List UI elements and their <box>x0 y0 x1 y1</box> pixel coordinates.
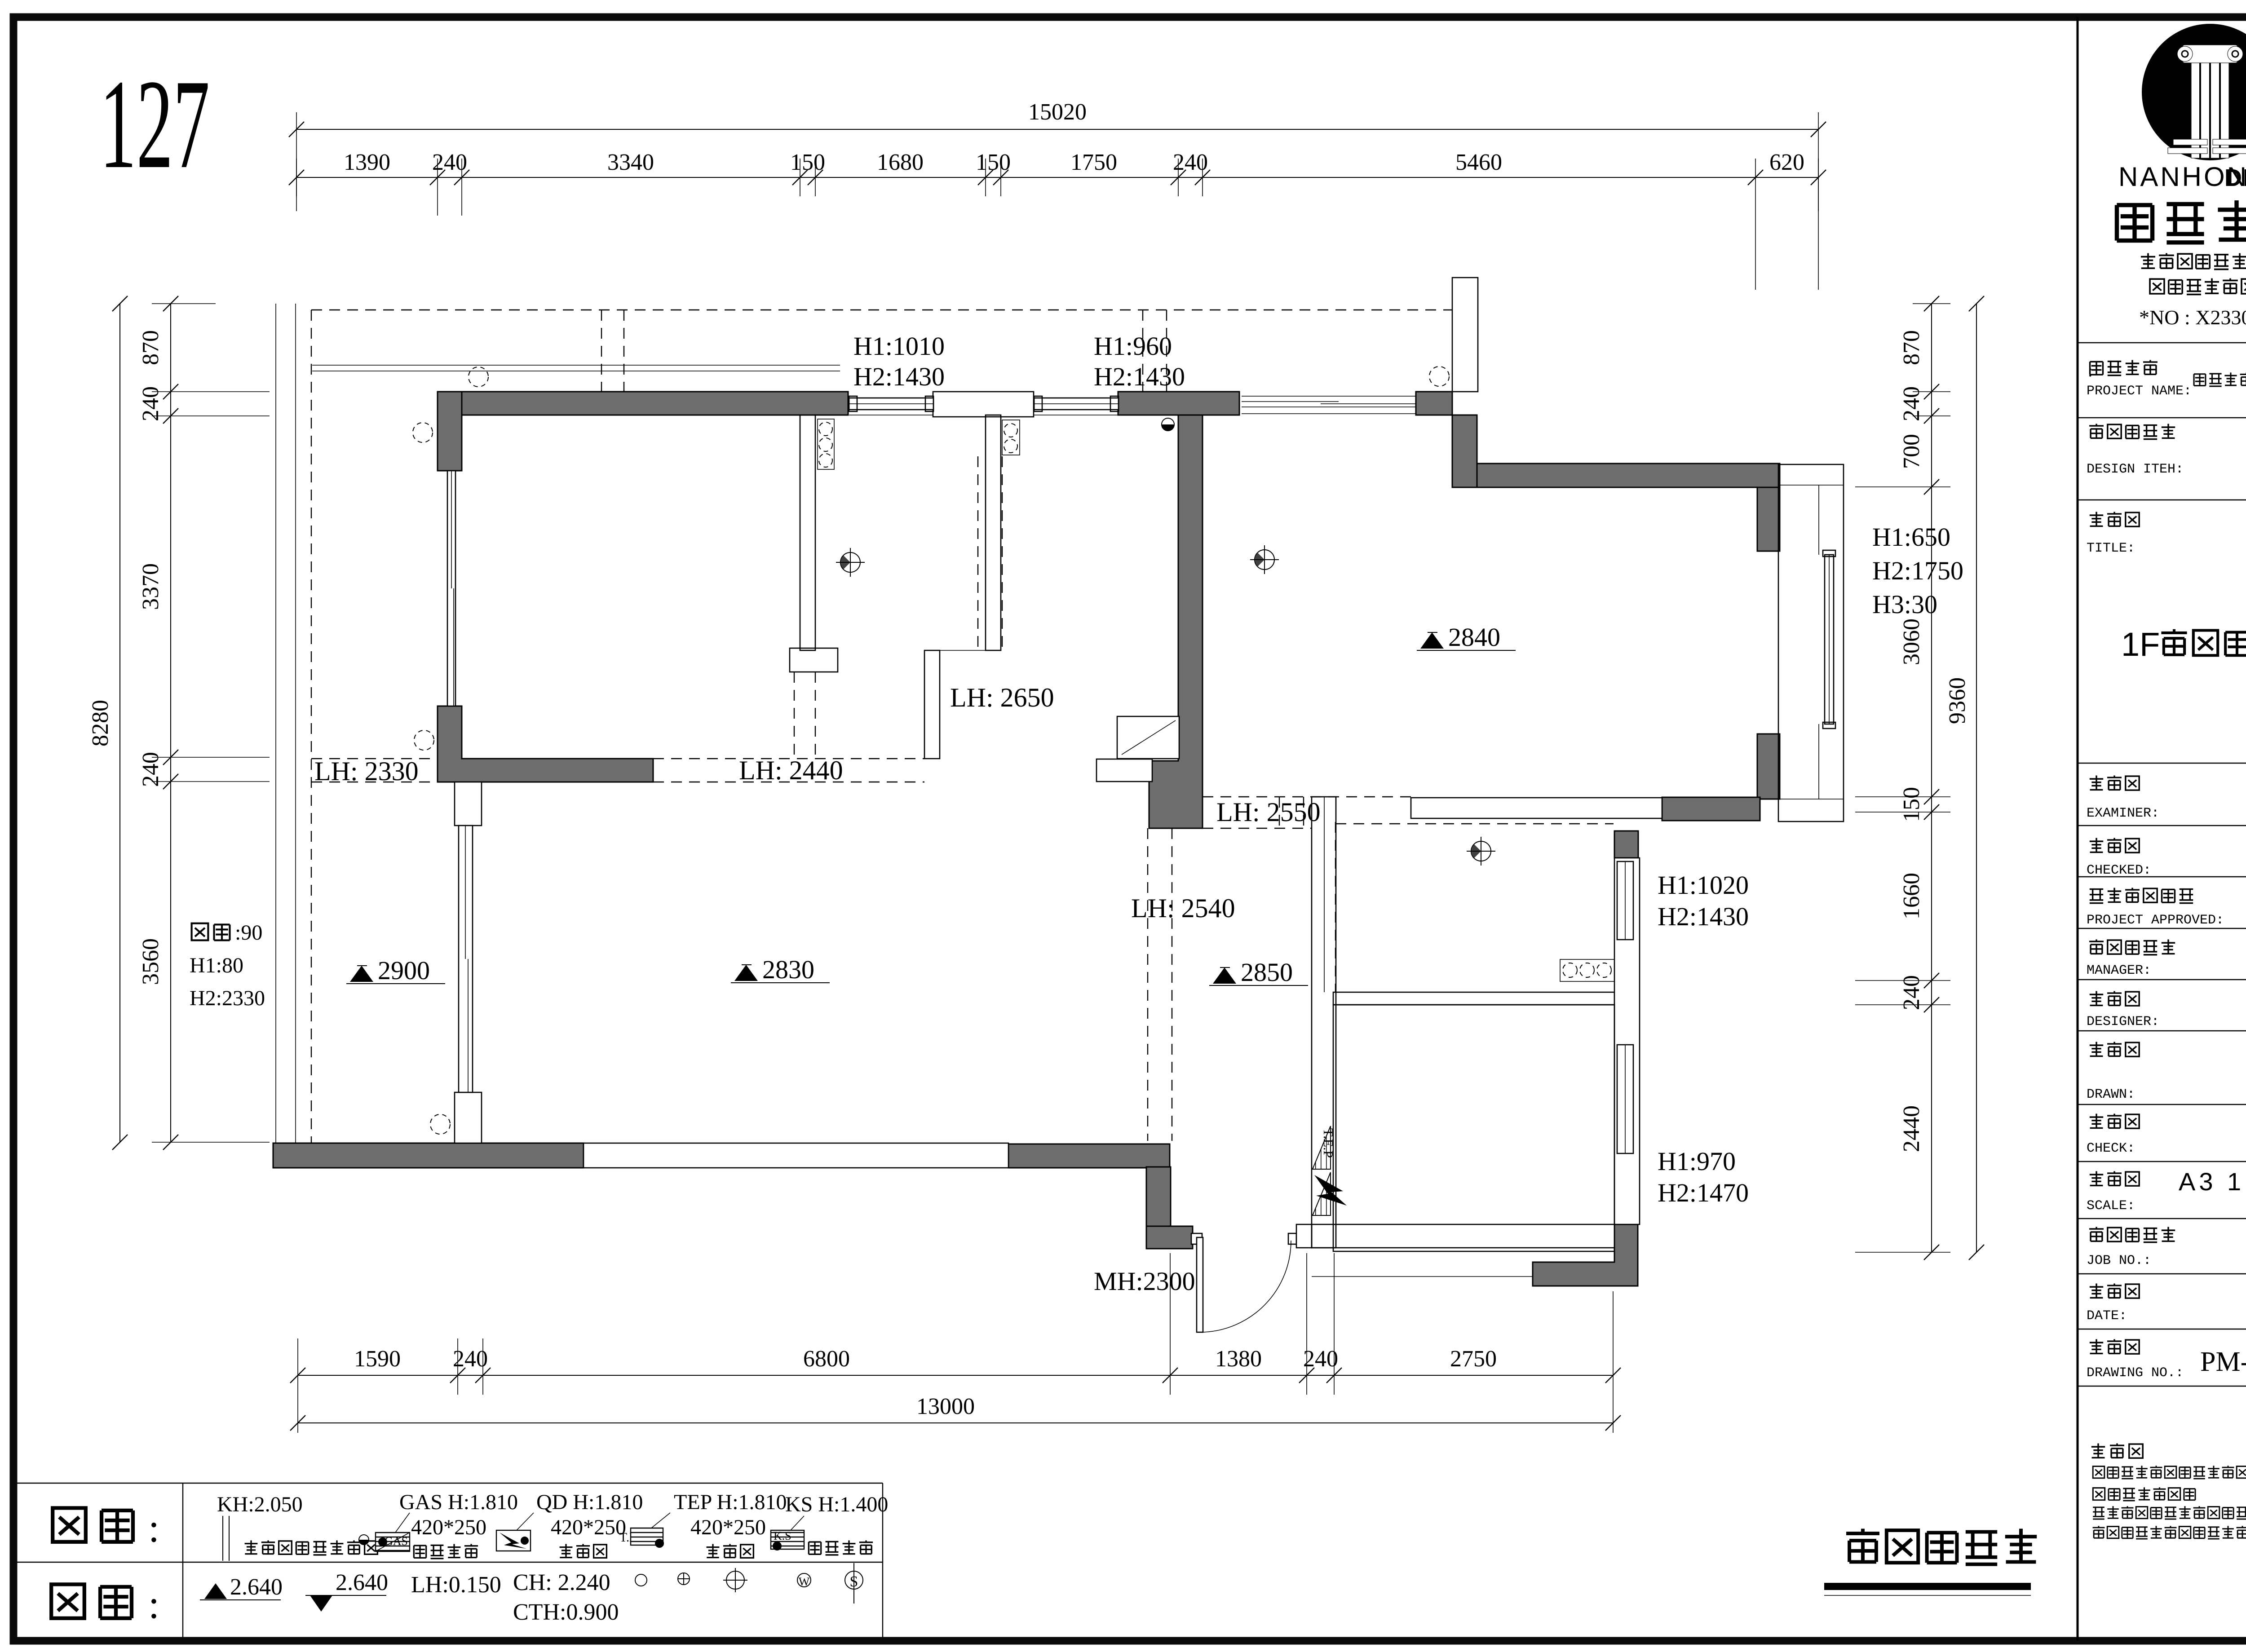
svg-text:15020: 15020 <box>1028 99 1087 125</box>
svg-text:PROJECT APPROVED:: PROJECT APPROVED: <box>2087 913 2224 928</box>
svg-text:TEP H:1.810: TEP H:1.810 <box>674 1490 787 1514</box>
svg-text:H2:2330: H2:2330 <box>190 986 265 1010</box>
svg-text:GAS H:1.810: GAS H:1.810 <box>399 1490 518 1514</box>
svg-text:A3 1:35: A3 1:35 <box>2179 1167 2246 1196</box>
svg-text:240: 240 <box>1303 1346 1338 1372</box>
svg-text:PM-01: PM-01 <box>2200 1347 2246 1377</box>
svg-text:JOB NO.:: JOB NO.: <box>2087 1253 2151 1268</box>
svg-text:5460: 5460 <box>1455 150 1502 175</box>
svg-text::: : <box>2088 362 2093 380</box>
svg-text:870: 870 <box>138 330 164 365</box>
svg-text:DRAWN:: DRAWN: <box>2087 1087 2135 1102</box>
svg-text:H1:1020: H1:1020 <box>1658 870 1749 900</box>
svg-text:420*250: 420*250 <box>411 1515 486 1539</box>
svg-text:1680: 1680 <box>877 150 924 175</box>
svg-text:H2:1470: H2:1470 <box>1658 1178 1749 1207</box>
svg-text:CHECKED:: CHECKED: <box>2087 863 2151 878</box>
svg-text:240: 240 <box>138 752 164 787</box>
svg-text:KS H:1.400: KS H:1.400 <box>785 1493 888 1516</box>
svg-text:TITLE:: TITLE: <box>2087 541 2135 556</box>
svg-text:H2:1750: H2:1750 <box>1872 556 1963 585</box>
svg-text:LH: 2540: LH: 2540 <box>1131 893 1235 923</box>
svg-text:LH: 2440: LH: 2440 <box>739 755 843 785</box>
svg-text:2.640: 2.640 <box>230 1574 283 1600</box>
svg-text:240: 240 <box>1899 386 1924 421</box>
svg-text:H2:1430: H2:1430 <box>853 362 945 391</box>
svg-text:3060: 3060 <box>1899 618 1924 665</box>
svg-text:2830: 2830 <box>762 955 814 984</box>
svg-text:H1:1010: H1:1010 <box>853 331 945 361</box>
svg-text:MANAGER:: MANAGER: <box>2087 963 2151 978</box>
svg-text:240: 240 <box>432 150 467 175</box>
svg-text:W: W <box>799 1575 810 1588</box>
svg-text:EXAMINER:: EXAMINER: <box>2087 806 2159 821</box>
svg-text:13000: 13000 <box>916 1394 975 1419</box>
svg-text:240: 240 <box>1899 975 1924 1010</box>
svg-text:GAS: GAS <box>385 1535 408 1548</box>
svg-text:420*250: 420*250 <box>690 1515 766 1539</box>
svg-text:LH: 2650: LH: 2650 <box>950 683 1054 712</box>
svg-text:150: 150 <box>1899 787 1924 822</box>
svg-text:8280: 8280 <box>88 700 113 746</box>
svg-text:240: 240 <box>1173 150 1208 175</box>
svg-text:QD H:1.810: QD H:1.810 <box>536 1490 643 1514</box>
svg-text:6800: 6800 <box>803 1346 850 1372</box>
svg-text:H2:1430: H2:1430 <box>1094 362 1185 391</box>
svg-text:700: 700 <box>1899 434 1924 469</box>
svg-text:KH:2.050: KH:2.050 <box>217 1493 303 1516</box>
svg-text:SCALE:: SCALE: <box>2087 1198 2135 1214</box>
svg-text:1390: 1390 <box>344 150 390 175</box>
svg-text:DATE:: DATE: <box>2087 1308 2127 1324</box>
svg-text:870: 870 <box>1899 330 1924 365</box>
svg-text:LH:0.150: LH:0.150 <box>411 1572 501 1598</box>
svg-text:127: 127 <box>100 53 210 195</box>
svg-text:2440: 2440 <box>1899 1105 1924 1152</box>
svg-text:K.S: K.S <box>774 1529 791 1542</box>
svg-text:2840: 2840 <box>1448 623 1500 652</box>
svg-text:DESIGNER:: DESIGNER: <box>2087 1014 2159 1029</box>
svg-text:2.640: 2.640 <box>336 1570 388 1595</box>
svg-text:LH: 2550: LH: 2550 <box>1216 797 1321 827</box>
svg-text:1590: 1590 <box>354 1346 401 1372</box>
svg-text::90: :90 <box>235 921 262 945</box>
svg-text:CHECK:: CHECK: <box>2087 1141 2135 1156</box>
svg-text:9360: 9360 <box>1945 677 1970 724</box>
svg-text:1660: 1660 <box>1899 873 1924 919</box>
svg-text:1750: 1750 <box>1070 150 1117 175</box>
svg-text:1380: 1380 <box>1215 1346 1262 1372</box>
svg-text:150: 150 <box>790 150 825 175</box>
svg-text:DESIGN ITEH:: DESIGN ITEH: <box>2087 462 2184 477</box>
svg-text:3560: 3560 <box>138 938 164 985</box>
svg-text:150: 150 <box>976 150 1011 175</box>
svg-text:620: 620 <box>1769 150 1804 175</box>
svg-text:420*250: 420*250 <box>551 1515 626 1539</box>
svg-text:3340: 3340 <box>607 150 654 175</box>
svg-text:T.E.P: T.E.P <box>1321 1128 1335 1158</box>
svg-text:3370: 3370 <box>138 563 164 610</box>
svg-text:H1:650: H1:650 <box>1872 522 1950 552</box>
svg-text:H1:960: H1:960 <box>1094 331 1172 361</box>
svg-text:PROJECT NAME:: PROJECT NAME: <box>2087 384 2192 399</box>
svg-text:LH: 2330: LH: 2330 <box>314 756 419 786</box>
svg-text:H3:30: H3:30 <box>1872 590 1937 619</box>
svg-text:H2:1430: H2:1430 <box>1658 902 1749 931</box>
svg-text:2900: 2900 <box>378 956 430 985</box>
svg-text:H1:970: H1:970 <box>1658 1147 1736 1176</box>
svg-text:240: 240 <box>453 1346 488 1372</box>
svg-text:1F: 1F <box>2121 626 2160 663</box>
svg-text:CTH:0.900: CTH:0.900 <box>513 1599 619 1625</box>
svg-text:240: 240 <box>138 386 164 421</box>
svg-text:*NO : X233021396: *NO : X233021396 <box>2139 306 2246 329</box>
svg-text:DRAWING NO.:: DRAWING NO.: <box>2087 1365 2184 1381</box>
svg-text::: : <box>148 1582 159 1627</box>
svg-text:DESIGN: DESIGN <box>2224 164 2246 191</box>
svg-text:H1:80: H1:80 <box>190 954 243 977</box>
svg-text::: : <box>148 1506 159 1550</box>
svg-text:MH:2300: MH:2300 <box>1094 1267 1195 1296</box>
svg-text:CH: 2.240: CH: 2.240 <box>513 1570 610 1595</box>
svg-text:2750: 2750 <box>1450 1346 1497 1372</box>
svg-text:2850: 2850 <box>1241 958 1293 987</box>
